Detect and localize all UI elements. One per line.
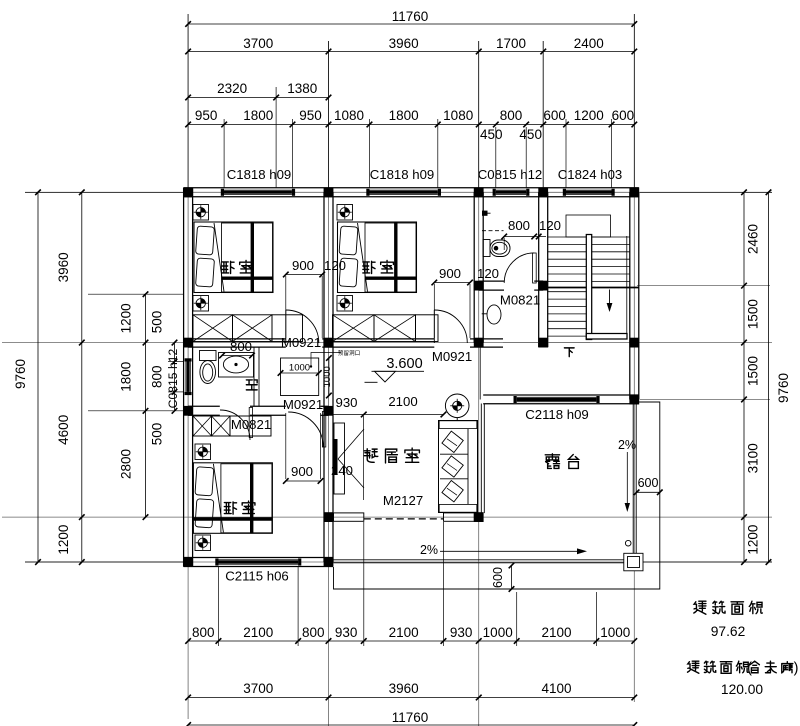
svg-text:930: 930 [335, 395, 357, 410]
svg-text:1800: 1800 [243, 108, 273, 123]
svg-text:1000: 1000 [600, 625, 630, 640]
svg-text:930: 930 [450, 625, 473, 640]
svg-text:120: 120 [324, 258, 346, 273]
svg-text:2100: 2100 [389, 625, 419, 640]
svg-text:97.62: 97.62 [711, 624, 746, 639]
svg-text:1700: 1700 [496, 36, 526, 51]
svg-text:1200: 1200 [574, 108, 604, 123]
svg-text:C0815 h12: C0815 h12 [478, 167, 543, 182]
svg-text:2100: 2100 [388, 394, 417, 409]
svg-text:1200: 1200 [56, 525, 71, 555]
svg-text:450: 450 [519, 127, 542, 142]
svg-text:950: 950 [299, 108, 322, 123]
svg-text:500: 500 [150, 423, 165, 446]
svg-text:930: 930 [335, 625, 358, 640]
svg-text:3960: 3960 [389, 36, 419, 51]
svg-text:M0921: M0921 [432, 349, 472, 364]
svg-text:C1824 h03: C1824 h03 [558, 167, 623, 182]
svg-text:1800: 1800 [389, 108, 419, 123]
svg-text:500: 500 [150, 311, 165, 334]
svg-text:C1818 h09: C1818 h09 [370, 167, 435, 182]
svg-text:2%: 2% [420, 543, 438, 557]
svg-text:M0821: M0821 [500, 293, 540, 308]
svg-text:3700: 3700 [243, 681, 273, 696]
svg-text:4100: 4100 [541, 681, 571, 696]
svg-text:C2115 h06: C2115 h06 [225, 569, 289, 584]
svg-text:2800: 2800 [119, 449, 134, 479]
svg-text:2320: 2320 [217, 81, 247, 96]
svg-text:120.00: 120.00 [721, 682, 764, 697]
svg-text:1000: 1000 [322, 366, 333, 387]
svg-text:): ) [794, 661, 799, 677]
svg-text:600: 600 [638, 476, 659, 490]
svg-text:800: 800 [192, 625, 215, 640]
svg-text:C2118 h09: C2118 h09 [525, 407, 589, 422]
svg-text:1000: 1000 [483, 625, 513, 640]
svg-text:1800: 1800 [119, 362, 134, 392]
svg-text:M0921: M0921 [281, 335, 321, 350]
svg-text:M2127: M2127 [383, 493, 423, 508]
svg-text:800: 800 [508, 218, 530, 233]
svg-text:240: 240 [331, 463, 353, 478]
svg-text:1080: 1080 [443, 108, 473, 123]
svg-text:4600: 4600 [56, 415, 71, 445]
svg-text:预留洞口: 预留洞口 [338, 349, 360, 357]
svg-text:1080: 1080 [334, 108, 364, 123]
svg-text:9760: 9760 [13, 359, 28, 389]
svg-text:3100: 3100 [746, 443, 761, 473]
svg-text:M0821: M0821 [231, 417, 271, 432]
svg-text:950: 950 [195, 108, 218, 123]
svg-text:1200: 1200 [746, 525, 761, 555]
svg-text:600: 600 [543, 108, 566, 123]
svg-text:900: 900 [439, 266, 461, 281]
svg-text:2100: 2100 [541, 625, 571, 640]
svg-text:M0921: M0921 [283, 397, 323, 412]
svg-text:3960: 3960 [56, 252, 71, 282]
svg-text:600: 600 [491, 567, 505, 588]
svg-text:1380: 1380 [287, 81, 317, 96]
svg-text:11760: 11760 [392, 710, 429, 725]
svg-text:1000: 1000 [289, 363, 310, 374]
svg-text:1500: 1500 [746, 299, 761, 329]
svg-text:3700: 3700 [243, 36, 273, 51]
svg-text:1500: 1500 [746, 356, 761, 386]
svg-text:2460: 2460 [746, 224, 761, 254]
svg-text:120: 120 [477, 266, 499, 281]
svg-text:3.600: 3.600 [386, 356, 422, 372]
svg-text:450: 450 [480, 127, 503, 142]
svg-text:800: 800 [150, 365, 165, 388]
svg-text:C1818 h09: C1818 h09 [227, 167, 292, 182]
svg-text:600: 600 [612, 108, 635, 123]
svg-text:900: 900 [291, 464, 313, 479]
svg-text:800: 800 [500, 108, 523, 123]
svg-text:800: 800 [302, 625, 325, 640]
svg-text:120: 120 [539, 218, 561, 233]
svg-text:2400: 2400 [574, 36, 604, 51]
svg-text:2100: 2100 [243, 625, 273, 640]
svg-text:900: 900 [292, 258, 314, 273]
svg-text:2%: 2% [618, 438, 636, 452]
svg-text:C0815 h12: C0815 h12 [166, 348, 180, 408]
svg-text:11760: 11760 [392, 9, 429, 24]
svg-text:3960: 3960 [389, 681, 419, 696]
svg-text:1200: 1200 [119, 303, 134, 333]
svg-text:9760: 9760 [776, 373, 791, 403]
